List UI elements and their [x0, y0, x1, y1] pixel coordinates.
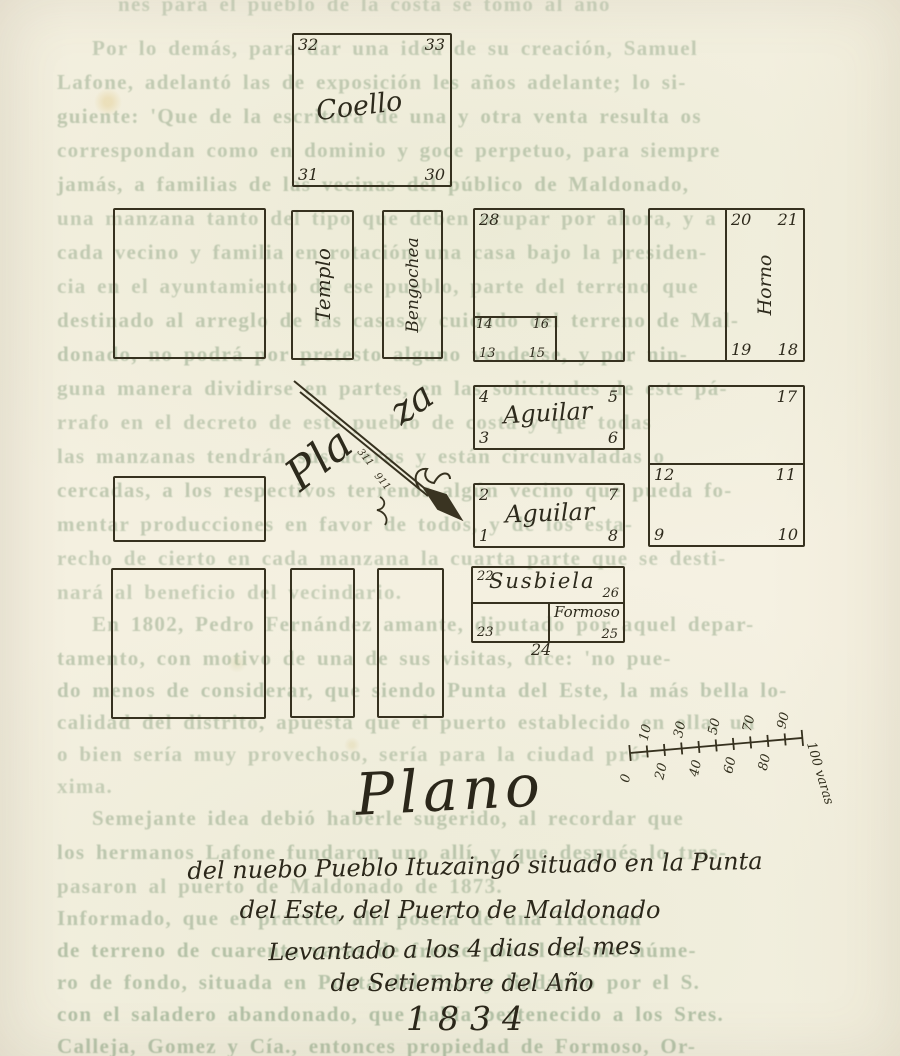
block-28: 28 14 16 13 15 — [473, 208, 625, 362]
lot-number: 8 — [608, 528, 618, 544]
lot-number: 4 — [479, 389, 489, 405]
lot-number: 15 — [528, 347, 545, 360]
lot-number: 18 — [778, 342, 798, 358]
block-coello: 32 33 31 30 Coello — [292, 33, 452, 187]
block-label-susbiela: Susbiela — [489, 569, 596, 593]
lot-number: 11 — [776, 467, 796, 483]
lot-number: 20 — [731, 212, 751, 228]
block-blank-s2 — [377, 568, 444, 718]
caption-year: 1834 — [100, 999, 840, 1038]
lot-number: 26 — [602, 587, 619, 600]
lot-number: 5 — [608, 389, 618, 405]
block-label-templo: Templo — [311, 248, 335, 322]
caption-line-2: del Este, del Puerto de Maldonado — [65, 896, 835, 924]
horno-cell: 20 21 19 18 Horno — [727, 210, 803, 360]
block-aguilar-2: 2 7 1 8 Aguilar — [473, 483, 625, 548]
lot-number: 28 — [479, 212, 499, 228]
block-label-formoso: Formoso — [554, 603, 620, 621]
bleed-text-line: nes para el pueblo de la costa se tomó a… — [118, 0, 611, 17]
lot-number: 10 — [778, 527, 798, 543]
caption-line-4: de Setiembre del Año — [82, 969, 842, 997]
lot-number: 9 — [654, 527, 664, 543]
lot-number: 14 — [476, 318, 493, 331]
lot-number: 23 — [477, 626, 494, 639]
formoso-cell: Formoso 25 — [548, 602, 623, 641]
block-blank-sw — [111, 568, 266, 719]
lot-number: 3 — [479, 430, 489, 446]
lot-number: 1 — [479, 528, 489, 544]
block-horno: 20 21 19 18 Horno — [648, 208, 805, 362]
block-east: 17 12 11 9 10 — [648, 385, 805, 547]
block-label-bengochea: Bengochea — [403, 237, 423, 332]
block-bengochea: Bengochea — [382, 210, 443, 359]
block-label-coello: Coello — [314, 86, 404, 127]
lot-number: 12 — [654, 467, 674, 483]
lot-number: 19 — [731, 342, 751, 358]
inner-lots-outline: 14 16 13 15 — [473, 316, 557, 362]
block-label-aguilar-2: Aguilar — [505, 497, 595, 528]
scanned-page: nes para el pueblo de la costa se tomó a… — [0, 0, 900, 1056]
block-aguilar-1: 4 5 3 6 Aguilar — [473, 385, 625, 450]
lot-number: 21 — [778, 212, 798, 228]
lot-number: 17 — [777, 389, 797, 405]
lot-number: 25 — [601, 628, 618, 641]
lot-number: 30 — [425, 167, 445, 183]
lot-number: 33 — [425, 37, 445, 53]
block-blank-s1 — [290, 568, 355, 718]
lot-number: 2 — [479, 487, 489, 503]
lot-number: 31 — [298, 167, 318, 183]
block-blank-nw — [113, 208, 266, 359]
lot-number: 32 — [298, 37, 318, 53]
lot-number: 7 — [608, 487, 618, 503]
block-templo: Templo — [291, 210, 354, 360]
lot-number: 13 — [479, 347, 496, 360]
block-blank-west — [113, 476, 266, 542]
lot-number: 6 — [608, 430, 618, 446]
block-label-aguilar-1: Aguilar — [502, 397, 593, 430]
block-susbiela-formoso: 22 Susbiela 26 23 Formoso 25 — [471, 566, 625, 643]
lot-number: 16 — [532, 318, 549, 331]
lot-number-24: 24 — [531, 642, 551, 658]
block-label-horno: Horno — [754, 255, 776, 316]
